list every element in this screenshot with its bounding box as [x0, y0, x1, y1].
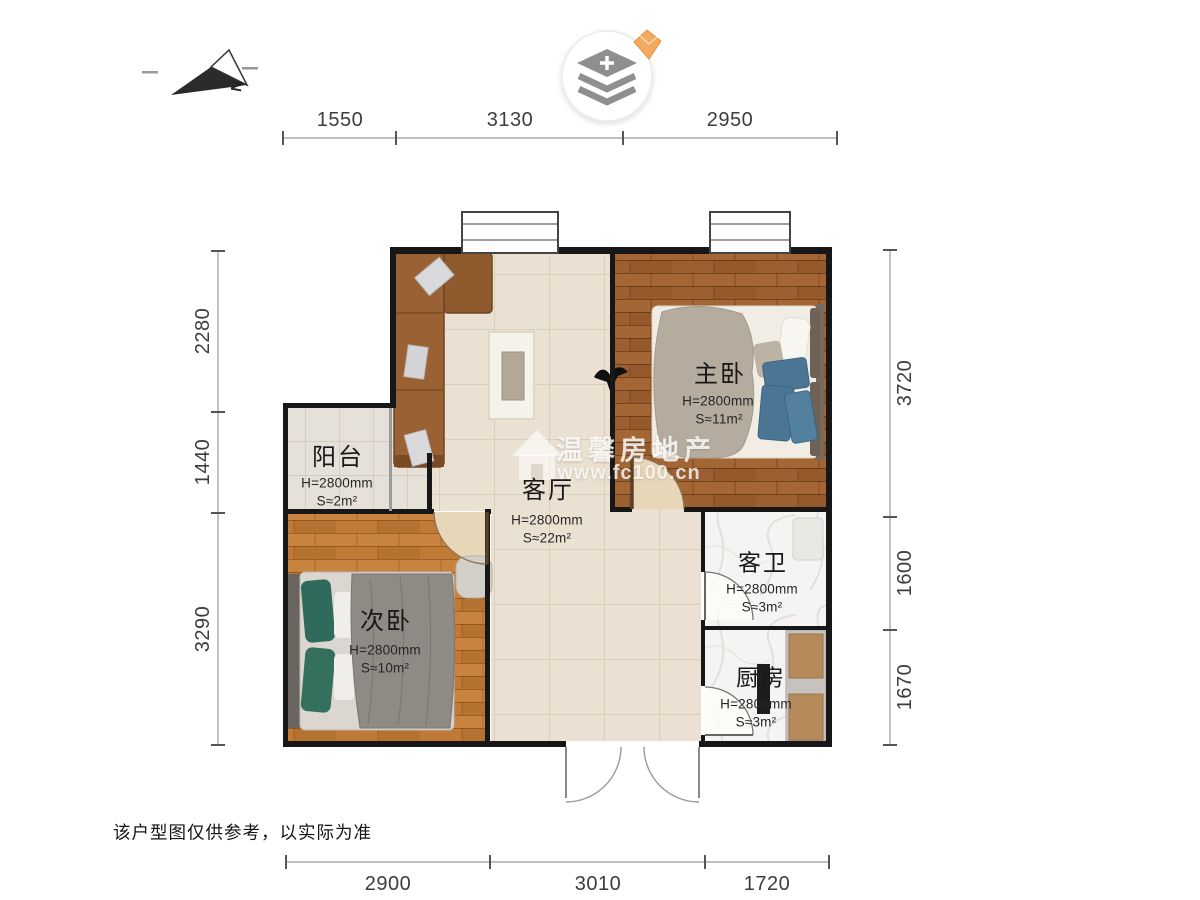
compass-north-label: N [228, 79, 245, 92]
dim-top-2: 3130 [487, 110, 534, 130]
floorplan-page: N 1550 3130 2950 2900 3010 1720 2280 144… [0, 0, 1200, 900]
dim-top-1: 1550 [317, 110, 364, 130]
dim-right-1: 3720 [895, 360, 915, 407]
room-height-balcony: H=2800mm [301, 476, 373, 490]
dim-top-3: 2950 [707, 110, 754, 130]
dim-bottom-1: 2900 [365, 874, 412, 894]
room-height-kitchen: H=2800mm [720, 697, 792, 711]
room-label-balcony: 阳台 [312, 446, 364, 470]
room-area-balcony: S≈2m² [317, 494, 358, 508]
coffee-table [489, 332, 534, 419]
dim-left-1: 2280 [193, 308, 213, 355]
layers-control-button[interactable] [555, 24, 670, 129]
entry-double-door [566, 747, 699, 802]
bath-vanity [793, 518, 823, 560]
balcony-glass-partition [389, 408, 392, 511]
room-area-living: S≈22m² [523, 531, 571, 545]
room-height-bath: H=2800mm [726, 582, 798, 596]
dim-bottom-2: 3010 [575, 874, 622, 894]
room-label-kitchen: 厨房 [736, 667, 786, 690]
room-label-master: 主卧 [694, 363, 746, 387]
watermark-url: www.fc100.cn [557, 463, 701, 483]
room-area-master: S≈11m² [695, 412, 742, 426]
disclaimer-text: 该户型图仅供参考，以实际为准 [113, 820, 372, 845]
room-height-master: H=2800mm [682, 394, 754, 408]
room-label-bath: 客卫 [738, 552, 788, 575]
dim-left-3: 3290 [193, 606, 213, 653]
room-label-second: 次卧 [360, 610, 412, 634]
room-height-second: H=2800mm [349, 643, 421, 657]
watermark-brand: 温馨房地产 [556, 438, 716, 465]
room-area-second: S≈10m² [361, 661, 409, 675]
room-height-living: H=2800mm [511, 513, 583, 527]
room-area-bath: S≈3m² [742, 600, 783, 614]
room-area-kitchen: S≈3m² [736, 715, 777, 729]
dim-right-3: 1670 [895, 664, 915, 711]
dim-left-2: 1440 [193, 439, 213, 486]
windows [462, 212, 790, 253]
dim-right-2: 1600 [895, 550, 915, 597]
dim-bottom-3: 1720 [744, 874, 791, 894]
